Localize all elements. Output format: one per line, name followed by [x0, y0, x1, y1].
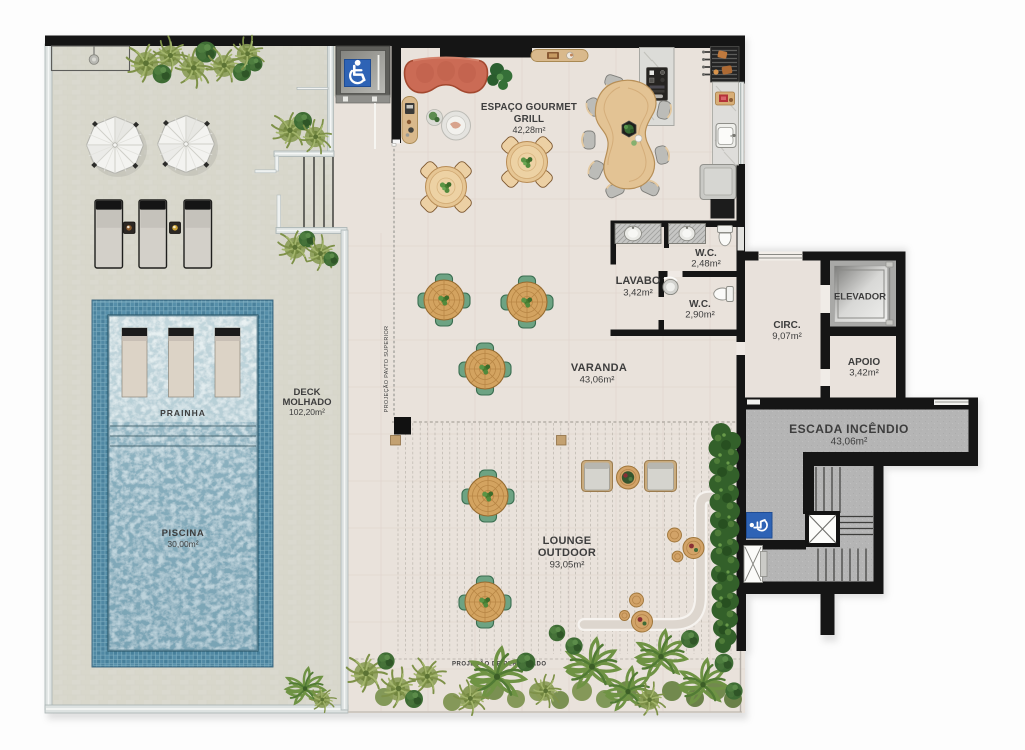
svg-text:102,20m²: 102,20m² — [289, 407, 325, 417]
svg-text:PISCINA: PISCINA — [162, 528, 205, 539]
svg-text:ELEVADOR: ELEVADOR — [834, 292, 886, 303]
svg-text:2,90m²: 2,90m² — [685, 310, 715, 321]
svg-text:GRILL: GRILL — [514, 114, 544, 125]
svg-text:ESPAÇO GOURMET: ESPAÇO GOURMET — [481, 102, 577, 113]
svg-text:W.C.: W.C. — [695, 248, 717, 259]
svg-text:43,06m²: 43,06m² — [580, 375, 615, 386]
svg-text:93,05m²: 93,05m² — [550, 560, 585, 571]
svg-text:VARANDA: VARANDA — [571, 362, 627, 374]
svg-text:30,00m²: 30,00m² — [167, 539, 198, 549]
svg-text:PRAINHA: PRAINHA — [160, 408, 206, 418]
svg-text:OUTDOOR: OUTDOOR — [538, 547, 596, 559]
svg-text:LAVABO: LAVABO — [616, 275, 661, 287]
svg-text:ESCADA INCÊNDIO: ESCADA INCÊNDIO — [789, 421, 909, 436]
svg-text:W.C.: W.C. — [689, 299, 711, 310]
svg-text:LOUNGE: LOUNGE — [543, 535, 592, 547]
svg-text:2,48m²: 2,48m² — [691, 259, 721, 270]
svg-text:PROJEÇÃO PAVTO SUPERIOR: PROJEÇÃO PAVTO SUPERIOR — [383, 326, 390, 413]
svg-text:CIRC.: CIRC. — [773, 320, 800, 331]
svg-text:APOIO: APOIO — [848, 357, 880, 368]
svg-text:3,42m²: 3,42m² — [849, 368, 879, 379]
svg-text:9,07m²: 9,07m² — [772, 331, 802, 342]
svg-text:43,06m²: 43,06m² — [831, 437, 868, 448]
svg-text:3,42m²: 3,42m² — [623, 288, 653, 299]
svg-text:42,28m²: 42,28m² — [512, 125, 545, 135]
